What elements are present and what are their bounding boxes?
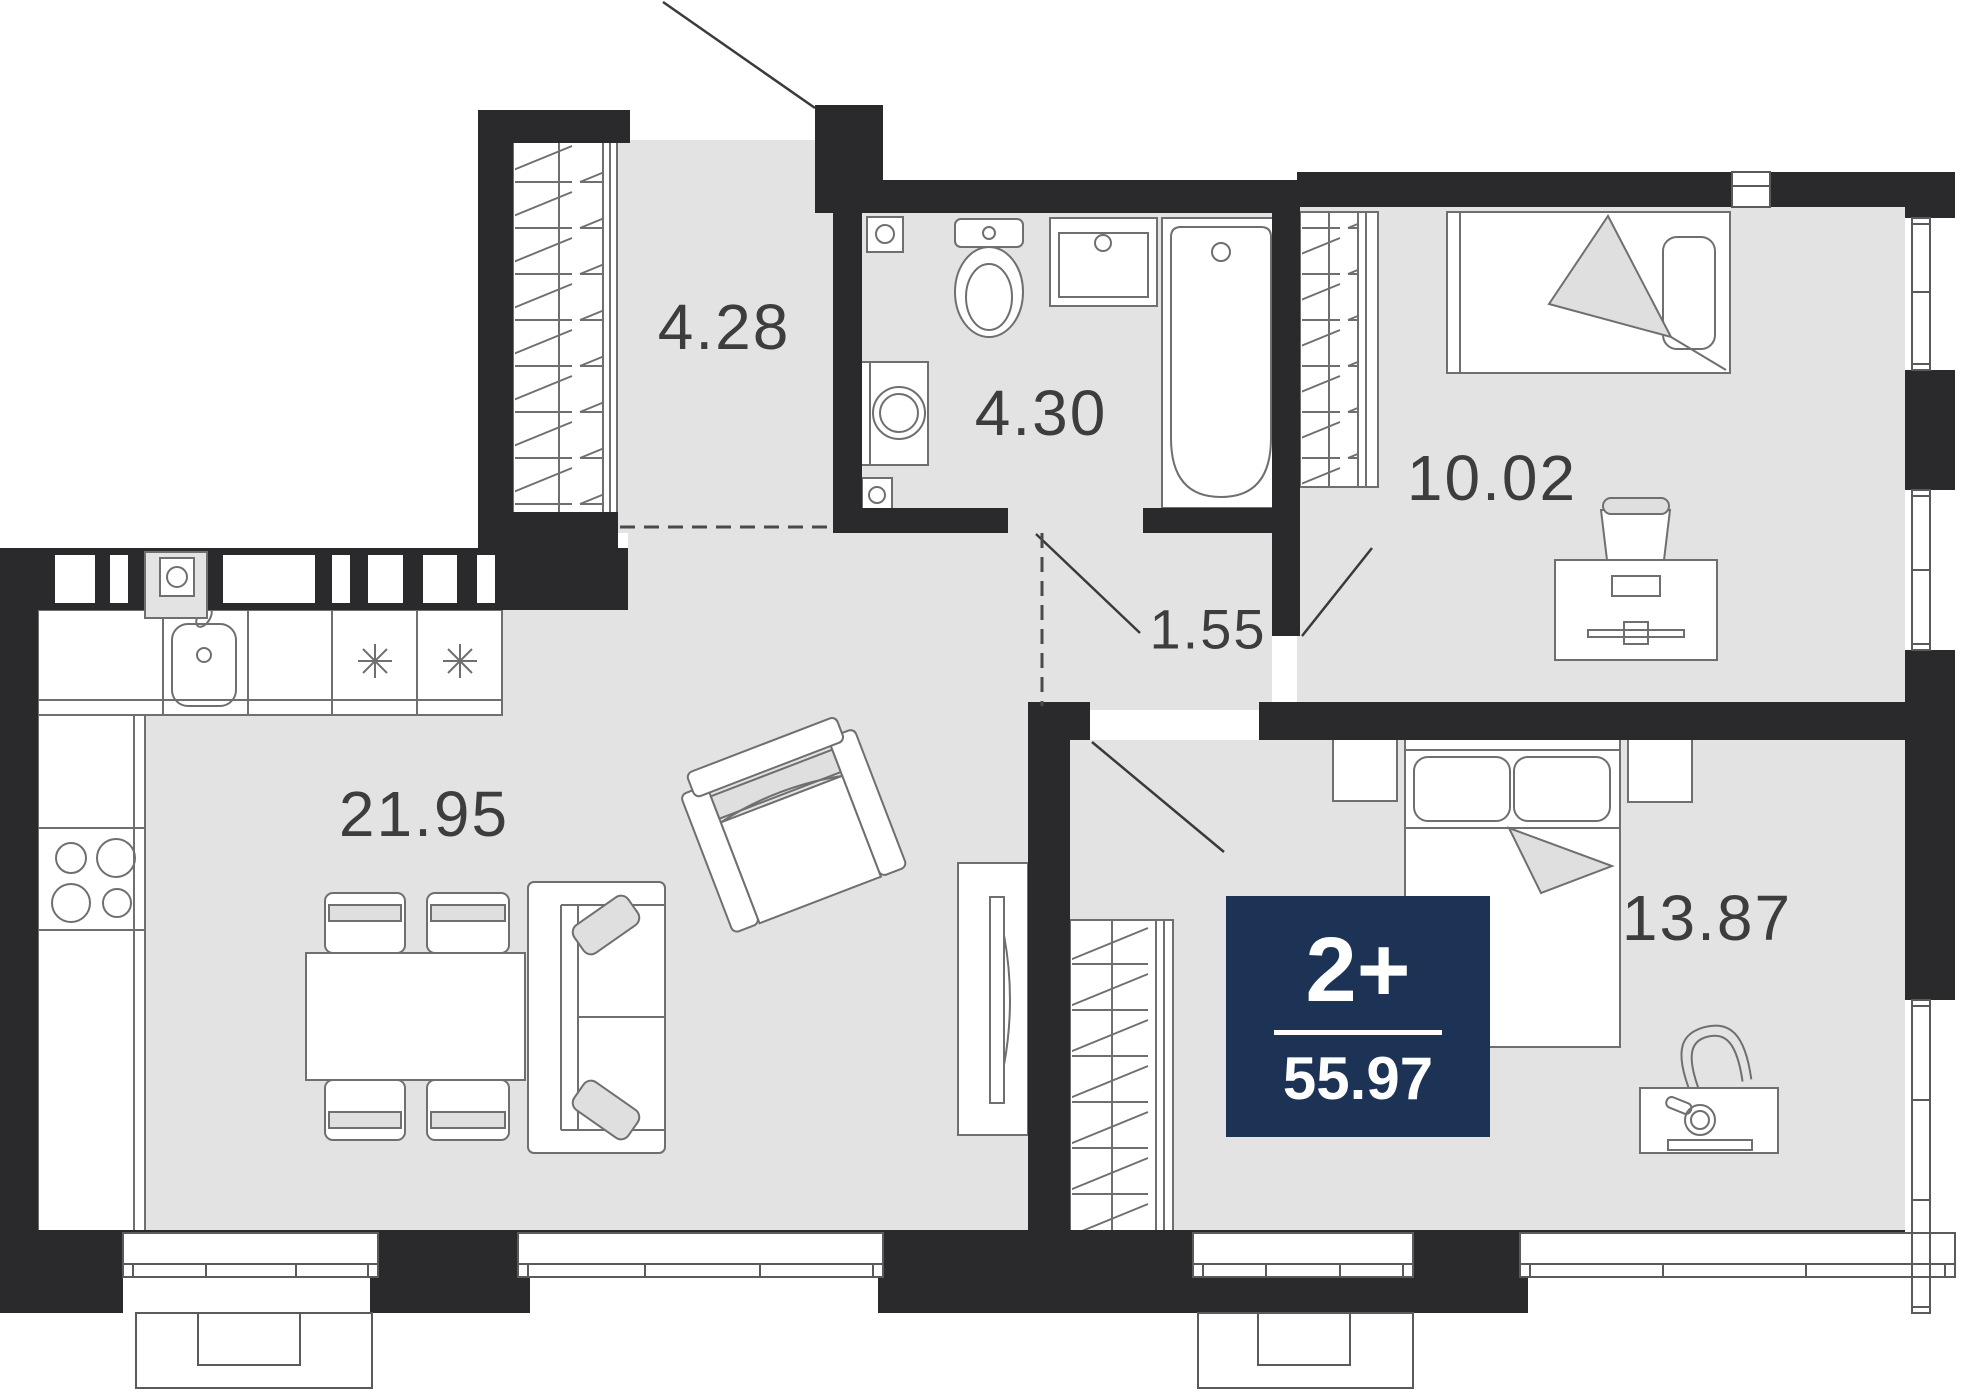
- room-label-corridor: 1.55: [1150, 597, 1267, 662]
- room-label-hall: 4.28: [658, 290, 791, 364]
- floor-plan-drawing: [0, 0, 1968, 1392]
- floor-plan: 4.28 4.30 10.02 1.55 21.95 13.87 2+ 55.9…: [0, 0, 1968, 1392]
- badge-total-area: 55.97: [1283, 1049, 1433, 1109]
- tv: [990, 897, 1004, 1103]
- wardrobe-bedroom-2: [1070, 920, 1173, 1232]
- pillow: [1663, 237, 1715, 349]
- wardrobe-hall: [513, 138, 617, 515]
- vent-box-icon: [867, 217, 903, 252]
- sofa: [528, 882, 665, 1153]
- kitchen-side-counter: [38, 715, 145, 1232]
- badge-divider: [1274, 1030, 1442, 1035]
- apartment-badge: 2+ 55.97: [1226, 896, 1490, 1137]
- toilet: [955, 219, 1023, 337]
- tv-stand: [958, 863, 1028, 1135]
- room-label-bedroom-2: 13.87: [1622, 881, 1792, 955]
- bathroom-sink: [1050, 218, 1157, 306]
- entrance-door-swing: [663, 2, 815, 108]
- single-bed: [1447, 212, 1730, 373]
- badge-room-count: 2+: [1306, 924, 1411, 1016]
- room-label-bathroom: 4.30: [975, 376, 1108, 450]
- pillow: [1414, 757, 1510, 821]
- room-label-kitchen-living: 21.95: [339, 777, 509, 851]
- bathtub: [1162, 218, 1280, 508]
- pillow: [1514, 757, 1610, 821]
- vent-box2-icon: [862, 478, 892, 513]
- wardrobe-bedroom-1: [1300, 212, 1378, 487]
- balcony-right: [1198, 1313, 1413, 1388]
- kitchen-counter: [38, 604, 502, 715]
- desk-chair: [1601, 510, 1670, 560]
- balcony-left: [136, 1313, 372, 1388]
- washing-machine: [860, 362, 928, 465]
- room-label-bedroom-1: 10.02: [1407, 441, 1577, 515]
